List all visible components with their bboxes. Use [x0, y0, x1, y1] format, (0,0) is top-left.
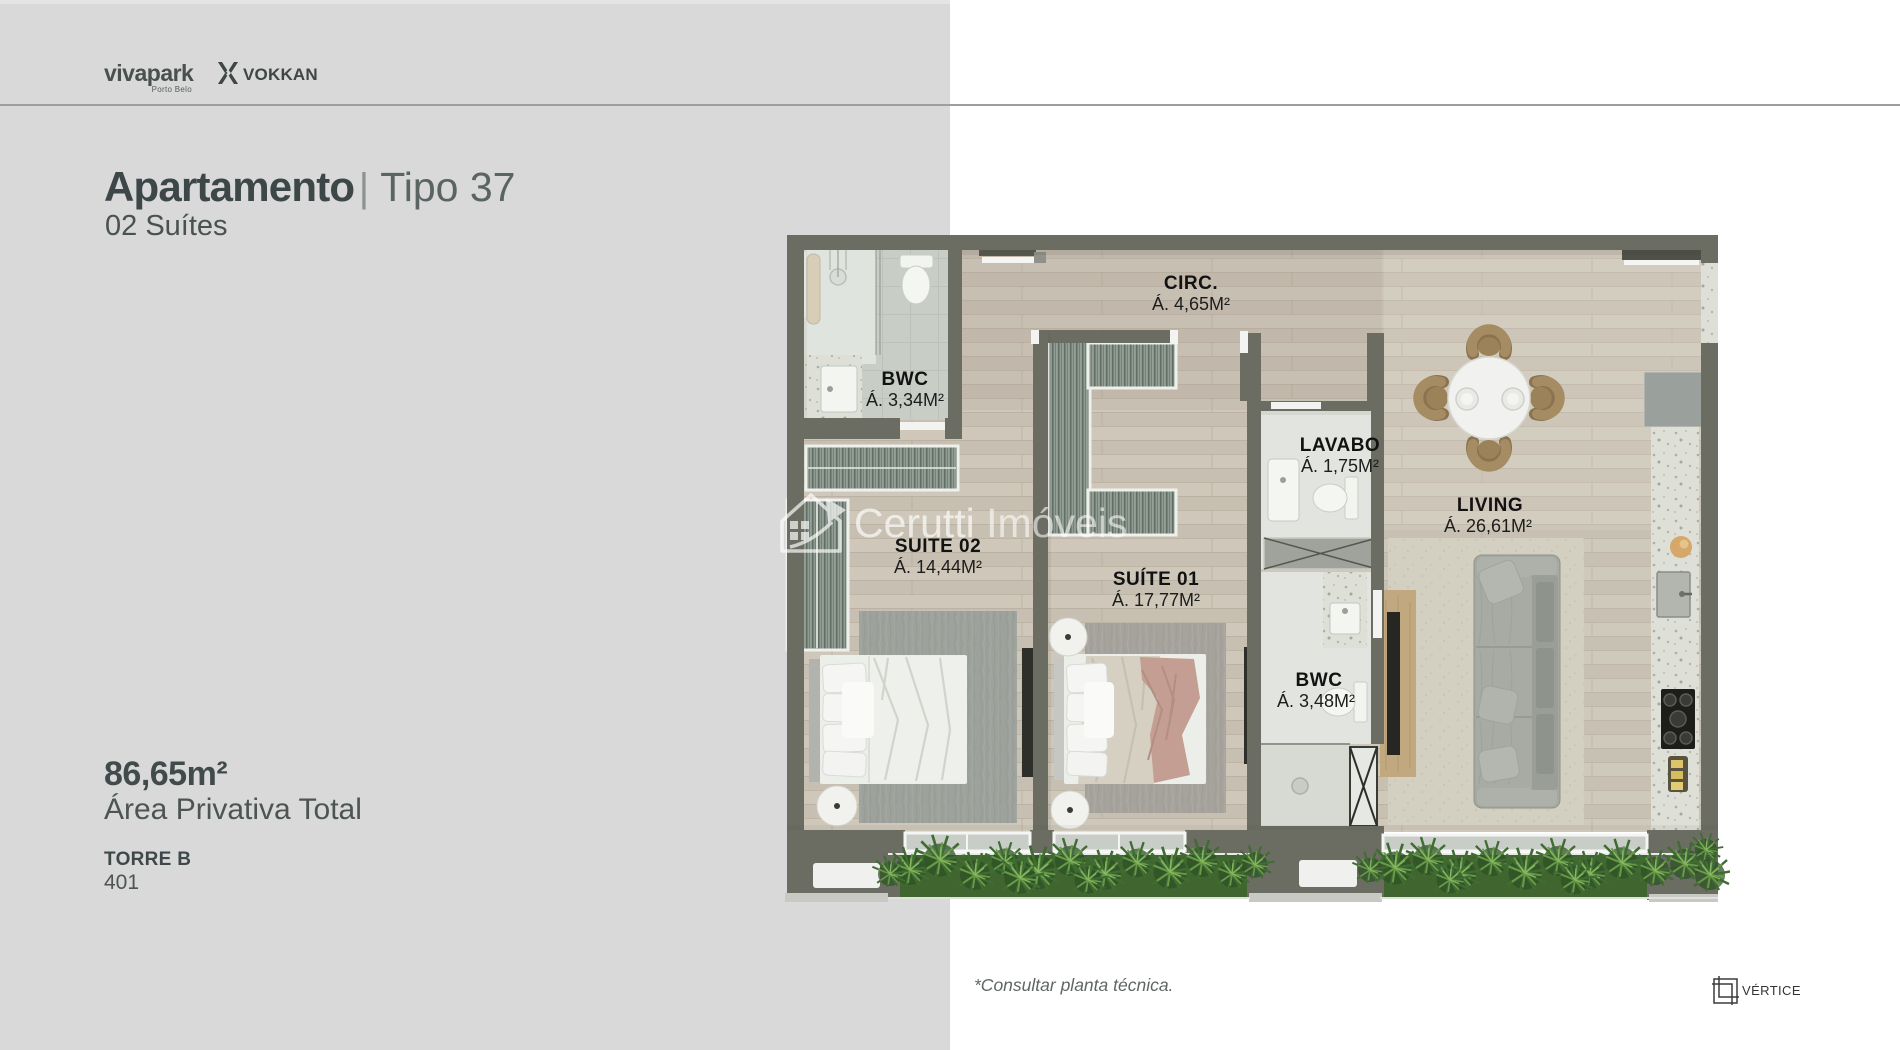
svg-text:Á. 4,65M²: Á. 4,65M²: [1152, 294, 1230, 314]
svg-text:BWC: BWC: [1296, 670, 1343, 691]
svg-text:SUÍTE 01: SUÍTE 01: [1113, 568, 1199, 590]
svg-text:LAVABO: LAVABO: [1300, 435, 1380, 456]
svg-text:Á. 26,61M²: Á. 26,61M²: [1444, 516, 1532, 536]
svg-text:Á. 3,34M²: Á. 3,34M²: [866, 390, 944, 410]
svg-text:LIVING: LIVING: [1457, 495, 1523, 516]
svg-text:CIRC.: CIRC.: [1164, 273, 1218, 294]
svg-text:Á. 17,77M²: Á. 17,77M²: [1112, 590, 1200, 610]
svg-text:Cerutti Imóveis: Cerutti Imóveis: [854, 500, 1127, 546]
svg-text:Á. 14,44M²: Á. 14,44M²: [894, 557, 982, 577]
svg-text:Á. 1,75M²: Á. 1,75M²: [1301, 456, 1379, 476]
svg-text:Á. 3,48M²: Á. 3,48M²: [1277, 691, 1355, 711]
svg-text:BWC: BWC: [882, 369, 929, 390]
